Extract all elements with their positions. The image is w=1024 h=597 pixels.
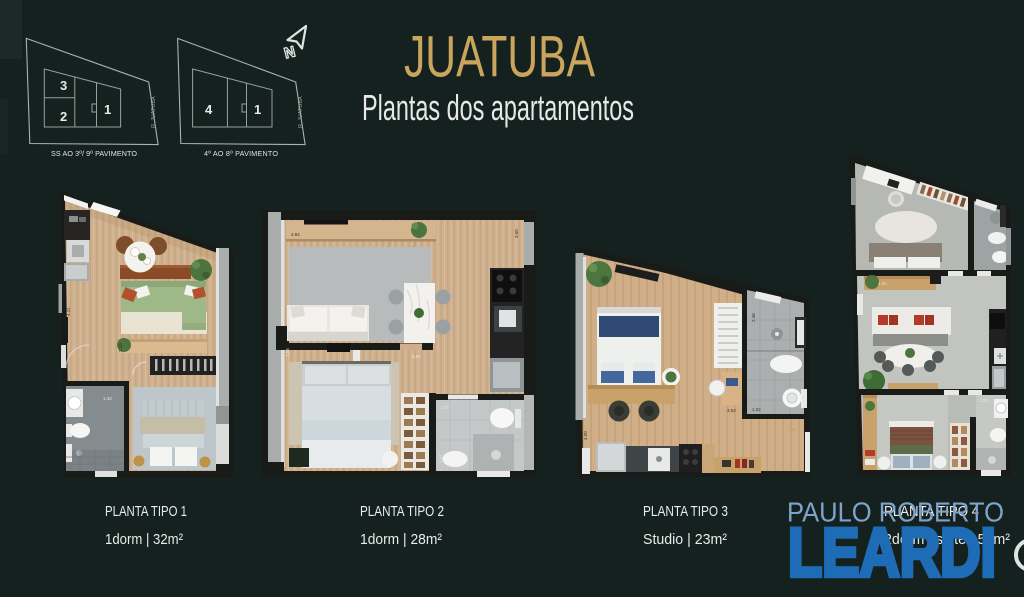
svg-text:3.60: 3.60 (514, 229, 519, 238)
svg-text:2.40: 2.40 (118, 343, 123, 352)
svg-text:LEARDI: LEARDI (788, 514, 996, 591)
svg-text:PLANTA TIPO 2: PLANTA TIPO 2 (360, 503, 444, 520)
svg-text:2: 2 (60, 109, 67, 124)
svg-text:2.91: 2.91 (412, 354, 421, 359)
svg-text:R. JUATUBA: R. JUATUBA (298, 96, 304, 128)
svg-text:2.46: 2.46 (751, 313, 756, 322)
svg-text:4.00: 4.00 (583, 431, 588, 440)
svg-text:1dorm | 28m²: 1dorm | 28m² (360, 531, 442, 548)
svg-text:N: N (283, 43, 298, 62)
svg-text:Plantas dos apartamentos: Plantas dos apartamentos (362, 87, 634, 128)
svg-text:3.52: 3.52 (727, 408, 736, 413)
svg-text:1.47: 1.47 (438, 454, 443, 463)
svg-text:4.84: 4.84 (291, 232, 300, 237)
svg-text:1: 1 (254, 102, 261, 117)
svg-text:1.42: 1.42 (103, 396, 112, 401)
svg-text:2.55: 2.55 (285, 348, 290, 357)
svg-text:1: 1 (104, 102, 111, 117)
svg-text:1.22: 1.22 (752, 407, 761, 412)
svg-text:4.06: 4.06 (788, 427, 797, 432)
svg-text:1.20: 1.20 (979, 398, 988, 403)
svg-text:4º AO 8º PAVIMENTO: 4º AO 8º PAVIMENTO (204, 149, 278, 158)
svg-text:4: 4 (205, 102, 213, 117)
svg-text:Studio | 23m²: Studio | 23m² (643, 531, 727, 548)
svg-text:1dorm | 32m²: 1dorm | 32m² (105, 531, 183, 548)
svg-text:JUATUBA: JUATUBA (404, 25, 595, 90)
svg-text:R. JUATUBA: R. JUATUBA (151, 96, 157, 128)
svg-text:SS AO 3º/ 9º PAVIMENTO: SS AO 3º/ 9º PAVIMENTO (51, 149, 137, 158)
svg-text:4.80: 4.80 (878, 281, 887, 286)
svg-text:PLANTA TIPO 3: PLANTA TIPO 3 (643, 503, 728, 520)
svg-text:3: 3 (60, 78, 67, 93)
svg-text:PLANTA TIPO 1: PLANTA TIPO 1 (105, 503, 187, 520)
svg-text:4.11: 4.11 (66, 307, 71, 316)
svg-text:1.78: 1.78 (440, 405, 449, 410)
